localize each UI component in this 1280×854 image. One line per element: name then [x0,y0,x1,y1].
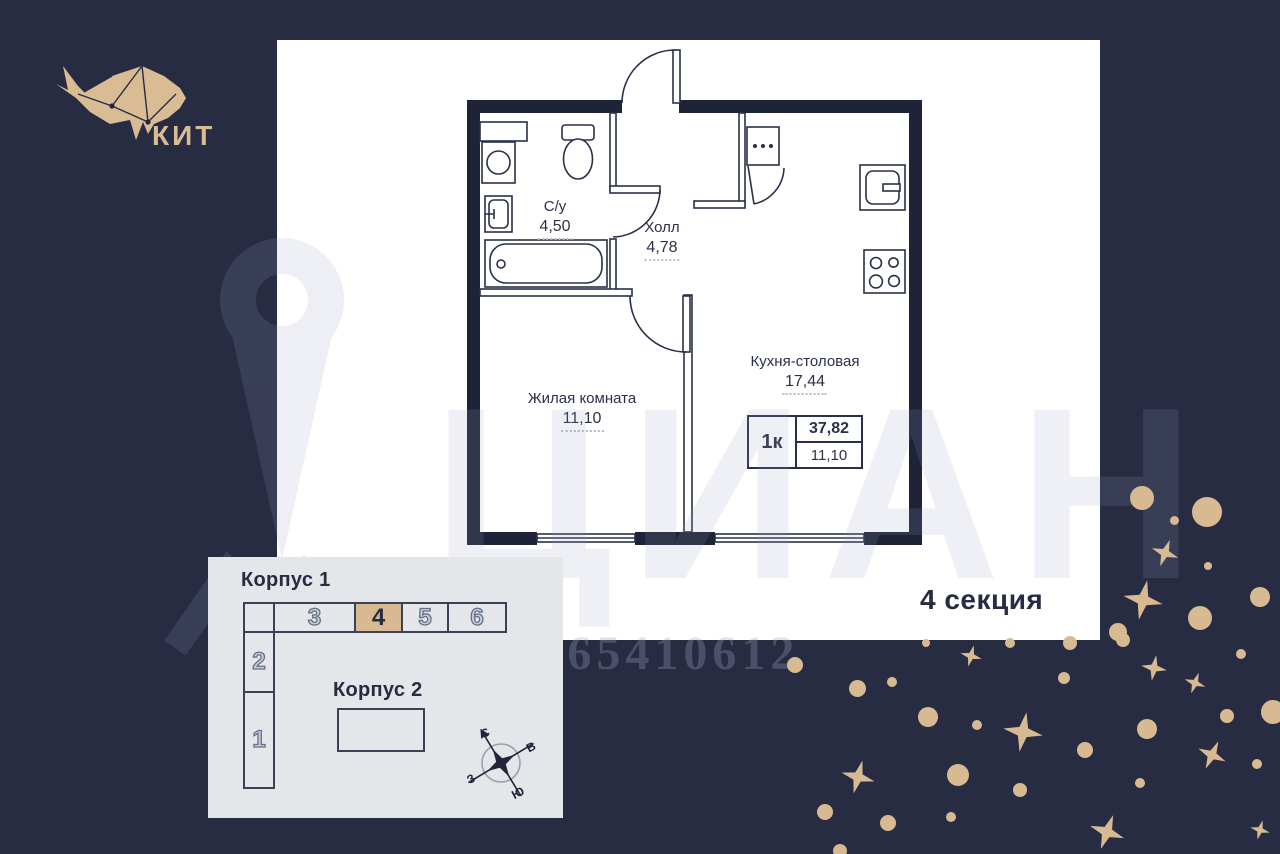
decor-dot [1170,516,1179,525]
building-section-2: 2 [243,631,275,693]
decor-dot [922,639,930,647]
entrance-door-icon [622,50,680,103]
section-number: 4 [372,604,385,632]
building-section-6: 6 [447,602,507,633]
decor-dot [1261,700,1280,724]
decor-dot [918,707,938,727]
decor-dot [1236,649,1246,659]
decor-dot [1220,709,1234,723]
korpus2-title: Корпус 2 [333,679,423,702]
room-name: Холл [644,219,679,238]
shaft-icon [747,127,784,204]
compass-e: В [524,739,539,756]
decor-star-icon [1248,818,1272,842]
room-area: 4,50 [537,217,572,240]
bathroom-sink-icon [485,196,512,232]
listing-card: КИТ [0,0,1280,854]
decor-star-icon [1192,735,1232,775]
decor-dot [1109,623,1127,641]
total-area: 37,82 [797,417,861,443]
decor-star-icon [958,643,985,670]
decor-dot [1063,636,1077,650]
decor-star-icon [1119,576,1166,623]
decor-dot [1005,638,1015,648]
building-corner-cell [243,602,275,633]
room-area: 11,10 [561,409,604,432]
room-area: 4,78 [644,238,679,261]
building-section-5: 5 [401,602,449,633]
decor-dot [887,677,897,687]
decor-dot [1252,759,1262,769]
room-area: 17,44 [783,372,827,395]
decor-dot [1188,606,1212,630]
decor-star-icon [1084,809,1130,854]
room-label-kitchen: Кухня-столовая 17,44 [751,353,860,395]
decor-star-icon [1147,535,1183,571]
building-section-4-highlighted: 4 [354,602,403,633]
decor-dot [972,720,982,730]
kitchen-sink-icon [860,165,905,210]
decor-dot [947,764,969,786]
section-number: 5 [418,604,431,632]
site-plan-panel: Корпус 1 3 4 5 6 2 1 Корпус 2 С [208,557,563,818]
compass-s: Ю [509,784,526,802]
brand-text: КИТ [152,120,215,151]
room-label-living: Жилая комната 11,10 [528,390,636,432]
section-number: 1 [252,726,265,754]
decor-dot [817,804,833,820]
decor-dot [1137,719,1157,739]
decor-dot [787,657,803,673]
room-label-bathroom: С/у 4,50 [537,198,572,240]
decor-dot [1058,672,1070,684]
room-name: С/у [537,198,572,217]
floor-plan-panel: С/у 4,50 Холл 4,78 Жилая комната 11,10 К… [277,40,1100,640]
toilet-icon [562,125,594,179]
decor-star-icon [837,756,879,798]
decor-dot [1204,562,1212,570]
area-summary-table: 1к 37,82 11,10 [747,415,863,469]
section-number: 3 [308,604,321,632]
rooms-count: 1к [749,417,797,467]
korpus2-outline [337,708,425,752]
decor-dot [1130,486,1154,510]
decor-dot [1077,742,1093,758]
decor-dot [1135,778,1145,788]
section-number: 6 [470,604,483,632]
decor-dot [880,815,896,831]
decor-dot [1192,497,1222,527]
living-room-door-icon [630,296,690,352]
interior-walls [480,113,745,532]
decor-star-icon [1181,669,1209,697]
living-area: 11,10 [797,443,861,467]
room-name: Жилая комната [528,390,636,409]
decor-dot [849,680,866,697]
decor-dot [1250,587,1270,607]
floor-plan [277,40,1100,640]
room-label-hall: Холл 4,78 [644,219,679,261]
korpus1-title: Корпус 1 [241,569,331,592]
section-label: 4 секция [920,584,1043,616]
bathtub-icon [485,240,607,287]
building-section-1: 1 [243,691,275,789]
section-number: 2 [252,648,265,676]
washing-machine-icon [482,142,515,183]
compass-n: С [478,725,493,742]
decor-dot [1013,783,1027,797]
decor-star-icon [1000,709,1046,755]
room-name: Кухня-столовая [751,353,860,372]
compass-rose-icon: С В З Ю [451,713,551,813]
stove-icon [864,250,905,293]
decor-dot [833,844,847,854]
whale-logo-icon: КИТ [48,50,268,160]
decor-star-icon [1139,653,1169,683]
building-section-3: 3 [273,602,356,633]
outer-walls [467,100,922,545]
decor-dot [946,812,956,822]
shelf-icon [480,122,527,141]
